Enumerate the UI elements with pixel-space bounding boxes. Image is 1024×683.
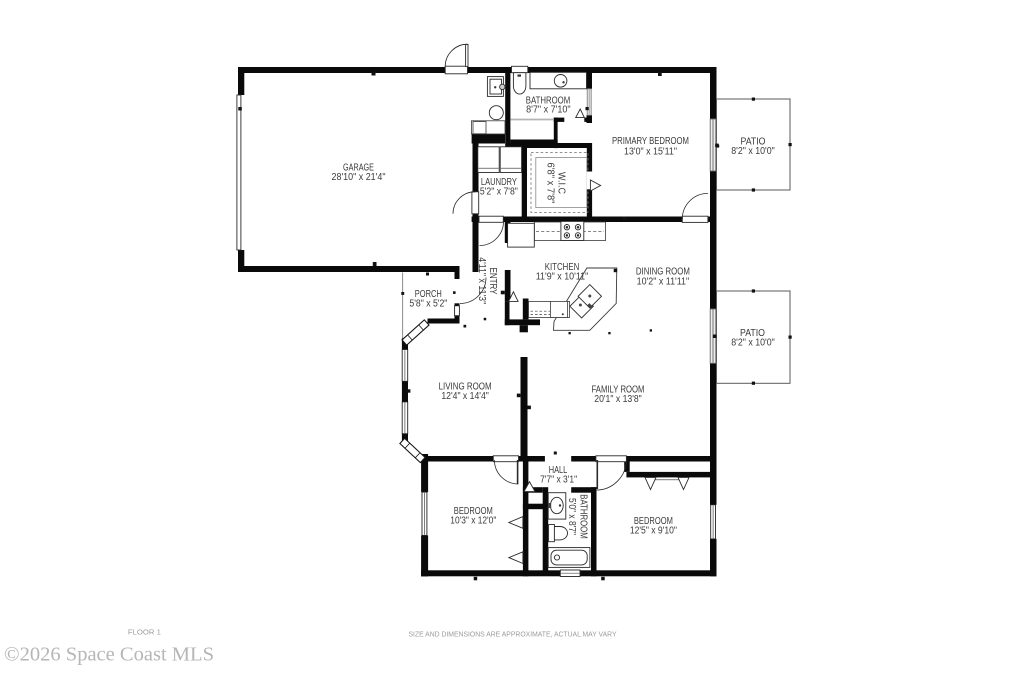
svg-text:8'2" x 10'0": 8'2" x 10'0" bbox=[731, 337, 775, 348]
svg-text:BATHROOM: BATHROOM bbox=[578, 494, 589, 539]
svg-text:10'3" x 12'0": 10'3" x 12'0" bbox=[450, 516, 496, 527]
svg-text:12'5" x 9'10": 12'5" x 9'10" bbox=[630, 525, 677, 536]
svg-text:W.I.C: W.I.C bbox=[556, 172, 567, 194]
svg-text:5'8" x 5'2": 5'8" x 5'2" bbox=[409, 299, 447, 310]
svg-text:20'1" x 13'8": 20'1" x 13'8" bbox=[594, 394, 642, 405]
svg-text:12'4" x 14'4": 12'4" x 14'4" bbox=[441, 391, 489, 402]
svg-text:©2026 Space Coast MLS: ©2026 Space Coast MLS bbox=[4, 644, 214, 666]
svg-text:13'0" x 15'11": 13'0" x 15'11" bbox=[624, 147, 677, 158]
svg-text:FLOOR 1: FLOOR 1 bbox=[128, 628, 161, 637]
svg-text:ENTRY: ENTRY bbox=[487, 268, 498, 295]
svg-text:7'7" x 3'1": 7'7" x 3'1" bbox=[540, 474, 577, 485]
svg-text:4'11" x 11'3": 4'11" x 11'3" bbox=[476, 257, 487, 304]
svg-text:8'2" x 10'0": 8'2" x 10'0" bbox=[731, 146, 775, 157]
svg-text:28'10" x 21'4": 28'10" x 21'4" bbox=[332, 172, 386, 183]
svg-text:6'8" x 7'8": 6'8" x 7'8" bbox=[545, 163, 556, 204]
svg-text:SIZE AND DIMENSIONS ARE APPROX: SIZE AND DIMENSIONS ARE APPROXIMATE, ACT… bbox=[409, 630, 617, 639]
svg-text:11'9" x 10'11": 11'9" x 10'11" bbox=[536, 272, 589, 283]
svg-text:8'7" x 7'10": 8'7" x 7'10" bbox=[526, 105, 571, 116]
svg-text:5'0" x 8'7": 5'0" x 8'7" bbox=[566, 498, 577, 535]
svg-text:10'2" x 11'11": 10'2" x 11'11" bbox=[637, 276, 690, 287]
svg-text:5'2" x 7'8": 5'2" x 7'8" bbox=[480, 186, 518, 197]
